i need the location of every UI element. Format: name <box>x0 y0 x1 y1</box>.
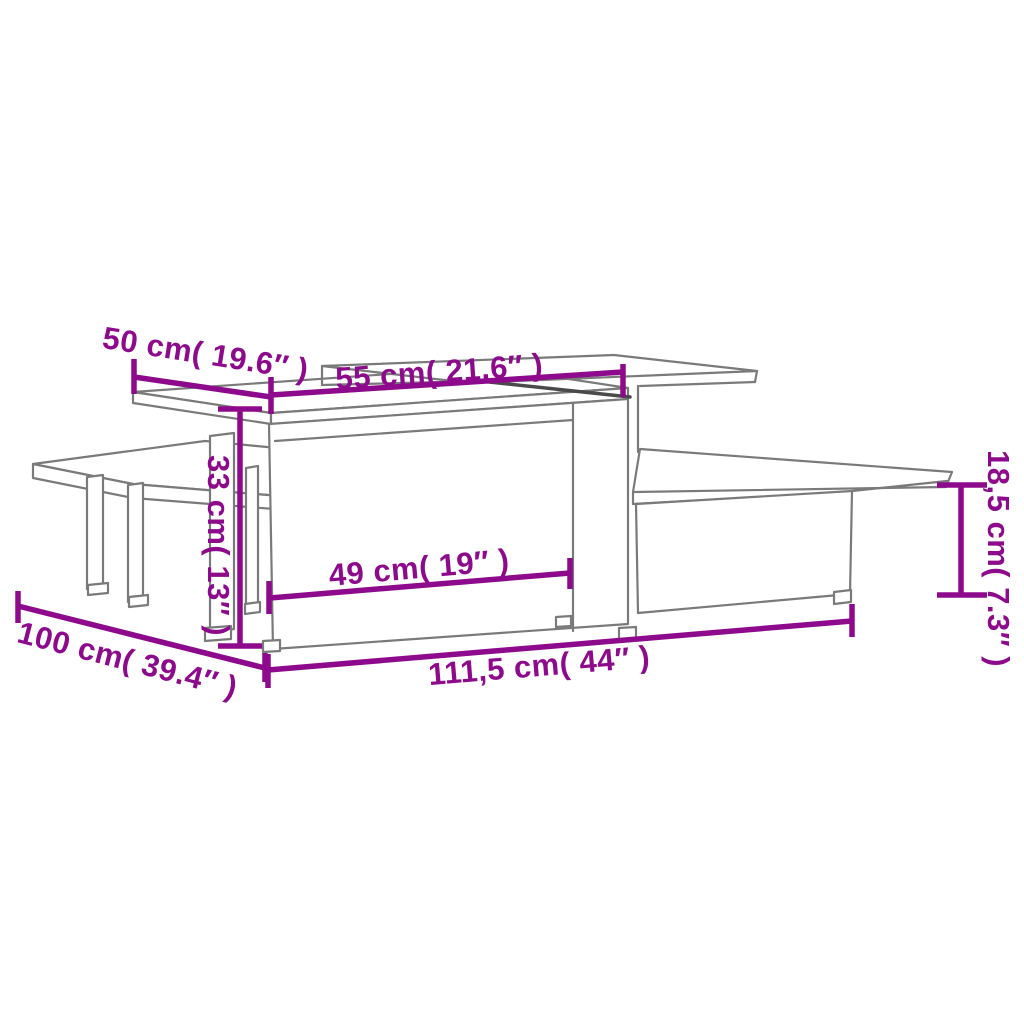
left-table-foot-1 <box>88 583 108 595</box>
left-table-rear-foot <box>245 602 260 614</box>
left-table-leg-2 <box>128 483 143 602</box>
dimension-18-5cm <box>937 485 987 595</box>
left-table-rear-leg <box>246 466 258 609</box>
left-table-leg-1 <box>87 475 103 589</box>
right-low-table <box>633 449 952 613</box>
left-table-foot-2 <box>129 595 148 607</box>
upper-shelf-right-cap <box>755 371 757 382</box>
right-table-foot <box>834 590 851 604</box>
label-33cm: 33 cm( 13″ ) <box>201 455 236 636</box>
center-front-face <box>269 399 628 649</box>
center-foot-left <box>263 640 280 652</box>
coffee-table-set-diagram: 50 cm( 19.6″ ) 55 cm( 21.6″ ) 33 cm( 13″… <box>0 0 1024 1024</box>
label-18-5cm: 18,5 cm( 7.3″ ) <box>981 450 1016 667</box>
upper-shelf-bottom-right-edge <box>640 382 755 386</box>
center-foot-mid <box>556 616 571 627</box>
right-table-base-front <box>636 491 852 613</box>
product-dimension-diagram: 50 cm( 19.6″ ) 55 cm( 21.6″ ) 33 cm( 13″… <box>0 0 1024 1024</box>
coffee-table-line-drawing <box>33 355 952 652</box>
